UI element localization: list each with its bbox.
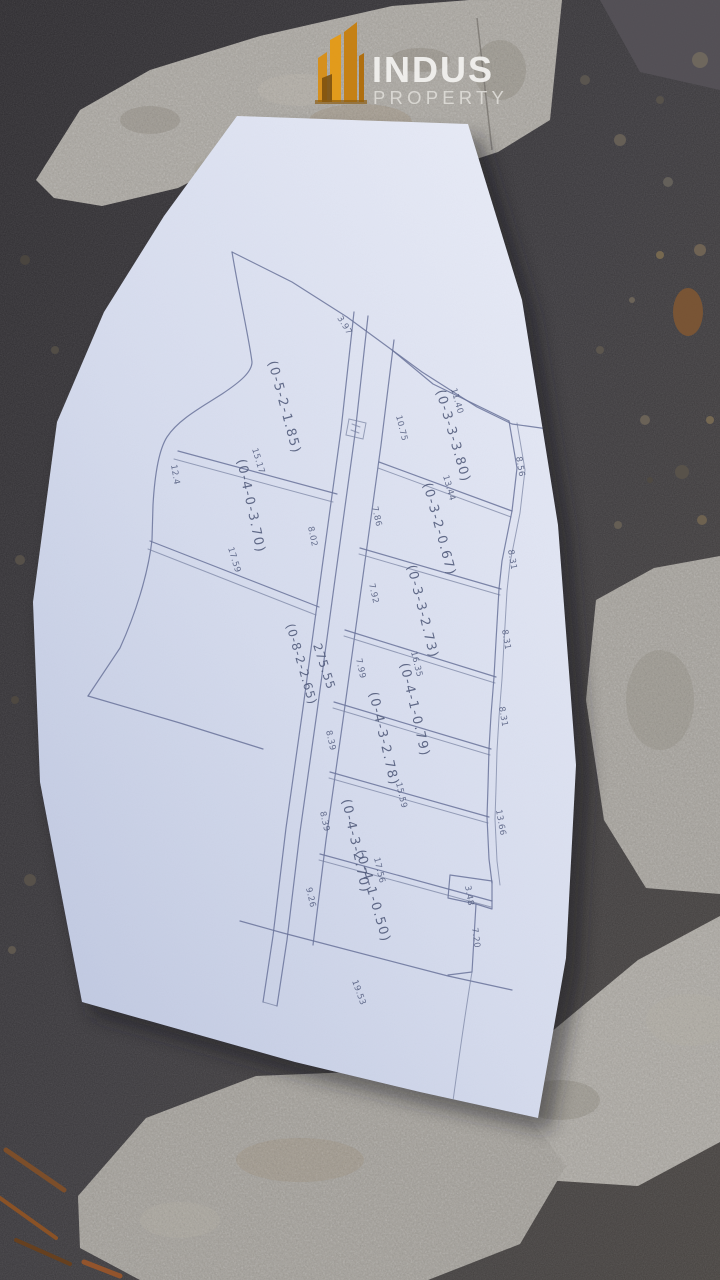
- brand-name: INDUS: [372, 49, 494, 90]
- brand-tagline: PROPERTY: [373, 87, 508, 108]
- photo-scene: (0-5-2-1.85) (0-4-0-3.70) (0-3-3-3.80) (…: [0, 0, 720, 1280]
- scene-svg: (0-5-2-1.85) (0-4-0-3.70) (0-3-3-3.80) (…: [0, 0, 720, 1280]
